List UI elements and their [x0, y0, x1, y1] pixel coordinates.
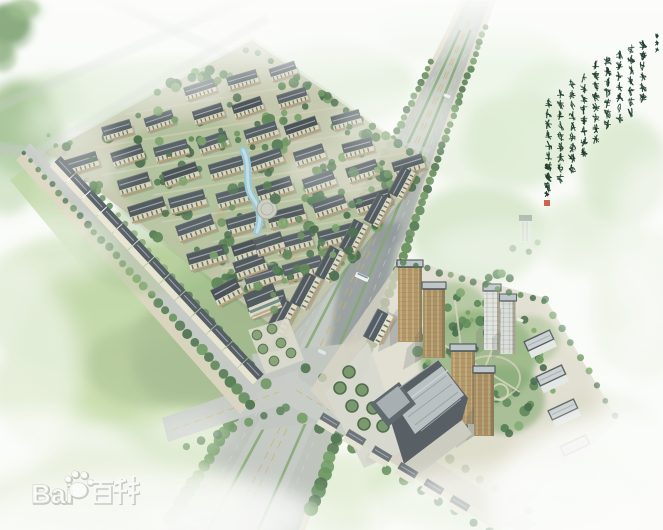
svg-text:Bai: Bai	[31, 479, 73, 509]
